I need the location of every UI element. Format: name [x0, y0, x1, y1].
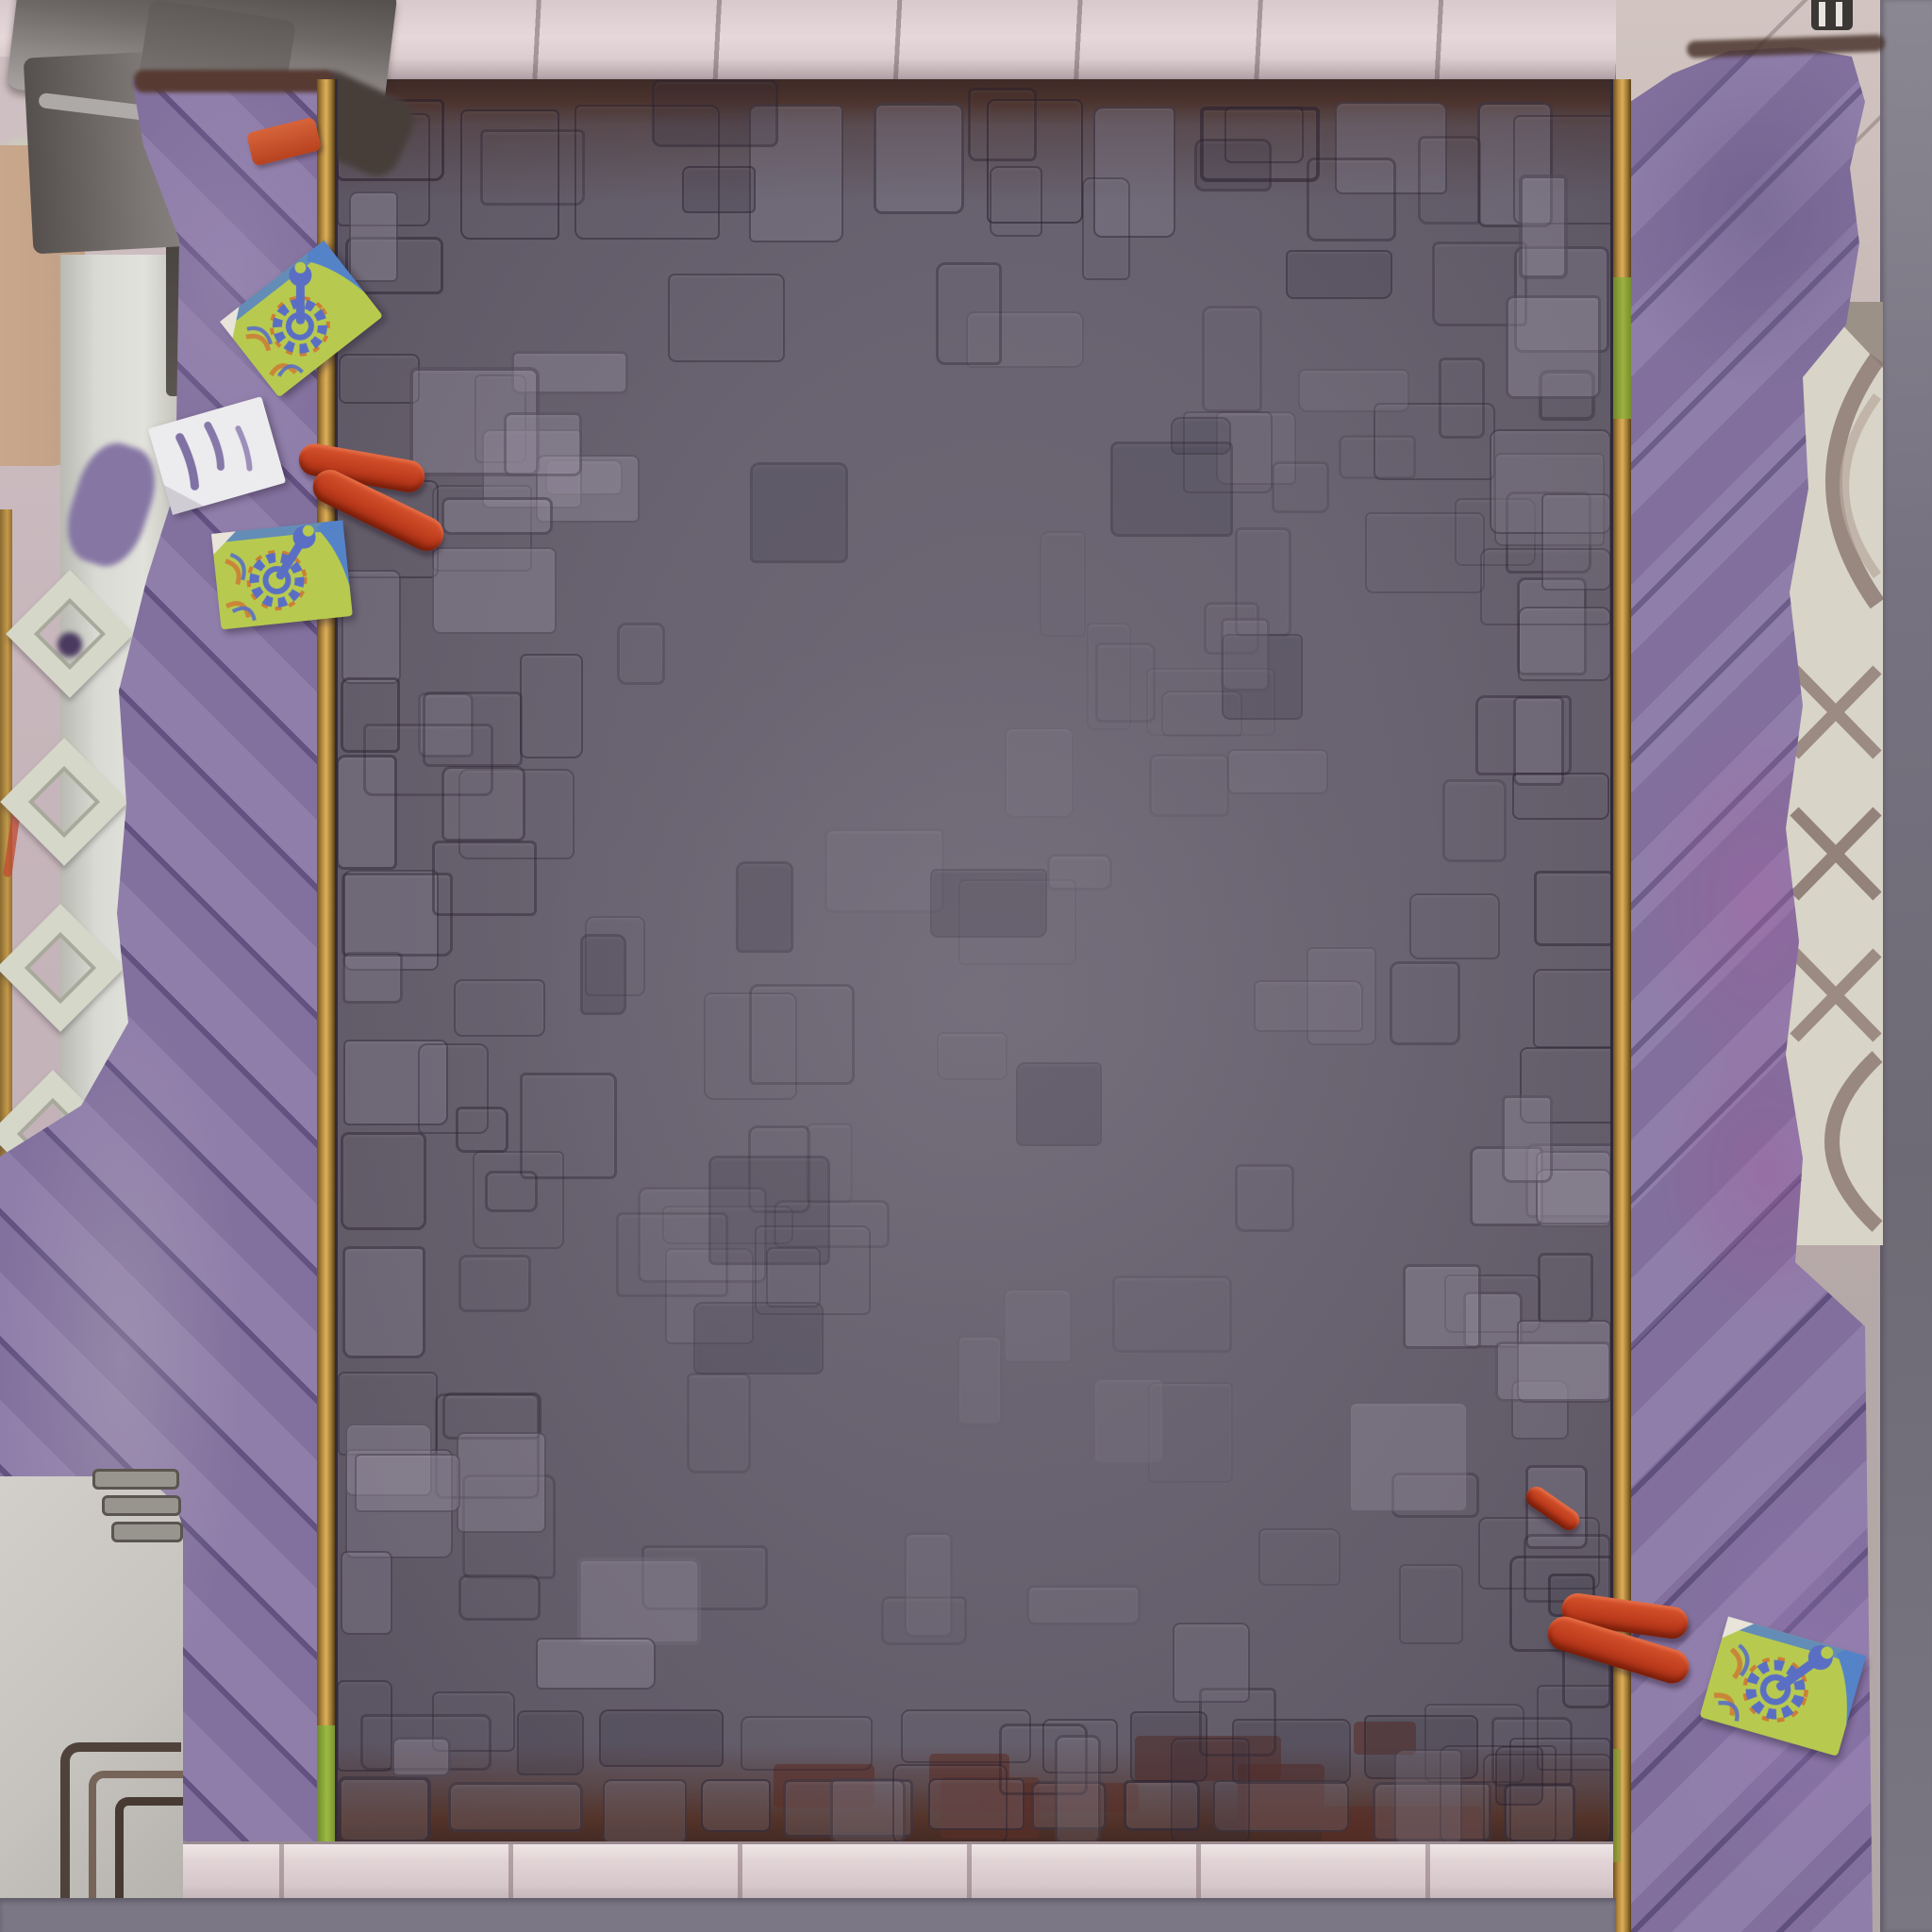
- bottom-gray-strip: [0, 1898, 1616, 1932]
- trim-green-segment: [1613, 277, 1631, 419]
- platform-top-cap: [134, 70, 334, 92]
- trim-green-segment: [317, 1725, 335, 1848]
- bottom-tile-border: [55, 1841, 1613, 1902]
- wall-ledge: [92, 1469, 179, 1490]
- top-right-pipe: [1811, 0, 1853, 30]
- trim-green-segment: [1613, 1749, 1621, 1862]
- wall-ledge: [111, 1522, 183, 1542]
- wall-ledge: [102, 1495, 181, 1516]
- arena-map: [0, 0, 1932, 1932]
- diamond-hole: [53, 627, 88, 662]
- cobblestones: [332, 79, 1616, 1848]
- cobblestone-floor[interactable]: [332, 79, 1616, 1848]
- right-gray-strip: [1880, 0, 1932, 1932]
- bottom-left-wall: [0, 1476, 183, 1932]
